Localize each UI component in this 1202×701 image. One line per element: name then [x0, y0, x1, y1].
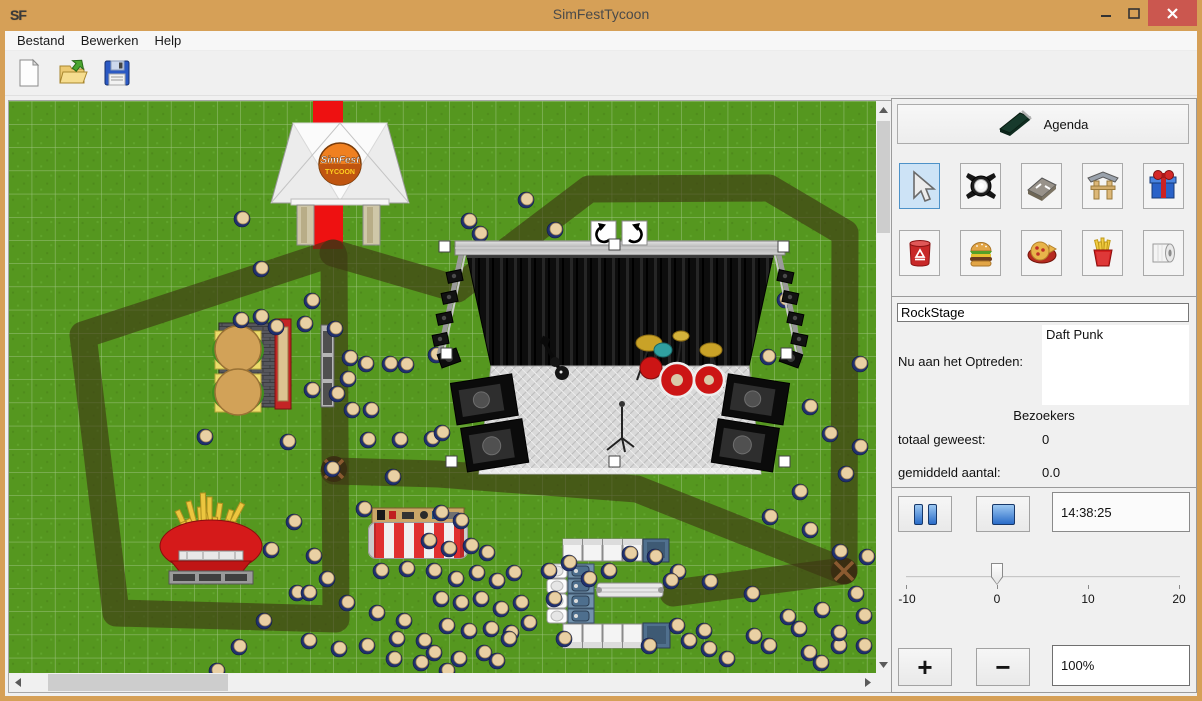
visitor[interactable] [301, 633, 317, 649]
visitor[interactable] [340, 371, 356, 387]
zoom-level-box[interactable]: 100% [1052, 645, 1190, 686]
visitor[interactable] [344, 402, 360, 418]
zoom-out-button[interactable]: − [976, 648, 1030, 686]
visitor[interactable] [856, 608, 872, 624]
visitor[interactable] [513, 595, 529, 611]
pause-icon [914, 504, 923, 525]
minimize-button[interactable] [1092, 0, 1120, 26]
menu-item-bewerken[interactable]: Bewerken [73, 31, 147, 50]
save-file-button[interactable] [99, 54, 135, 92]
visitor[interactable] [822, 426, 838, 442]
zoom-level-value: 100% [1061, 658, 1094, 673]
speed-slider-thumb[interactable] [991, 563, 1003, 585]
minimize-icon [1100, 7, 1112, 19]
visitor[interactable] [382, 356, 398, 372]
speed-slider-track[interactable] [906, 576, 1180, 578]
visitor[interactable] [331, 641, 347, 657]
visitor[interactable] [832, 544, 848, 560]
visitor[interactable] [473, 591, 489, 607]
visitor[interactable] [396, 613, 412, 629]
selection-handle[interactable] [609, 239, 620, 250]
agenda-label: Agenda [1044, 117, 1089, 132]
visitor[interactable] [744, 586, 760, 602]
road-tile-icon [1025, 169, 1059, 203]
maximize-button[interactable] [1120, 0, 1148, 26]
spotlight-icon [964, 169, 998, 203]
visitor[interactable] [701, 641, 717, 657]
tool-road-button[interactable] [1021, 163, 1062, 209]
visitor[interactable] [556, 631, 572, 647]
close-button[interactable] [1148, 0, 1197, 26]
visitor[interactable] [848, 586, 864, 602]
clock-display: 14:38:25 [1052, 492, 1190, 532]
scroll-up-arrow[interactable] [876, 101, 891, 118]
visitor[interactable] [385, 469, 401, 485]
vertical-scrollbar[interactable] [876, 101, 891, 673]
visitor[interactable] [286, 514, 302, 530]
visitor[interactable] [304, 382, 320, 398]
selection-handle[interactable] [439, 241, 450, 252]
visitor[interactable] [461, 623, 477, 639]
visitor[interactable] [506, 565, 522, 581]
selection-handle[interactable] [778, 241, 789, 252]
visitor[interactable] [301, 585, 317, 601]
visitor[interactable] [342, 350, 358, 366]
visitor[interactable] [760, 349, 776, 365]
tool-burger-stand-button[interactable] [960, 230, 1001, 276]
scroll-down-arrow[interactable] [876, 656, 891, 673]
cursor-icon [903, 169, 937, 203]
visitor[interactable] [461, 213, 477, 229]
visitor[interactable] [339, 595, 355, 611]
visitor[interactable] [791, 621, 807, 637]
visitor[interactable] [398, 357, 414, 373]
visitor[interactable] [622, 546, 638, 562]
visitor[interactable] [329, 386, 345, 402]
save-floppy-icon [101, 57, 133, 89]
visitor[interactable] [369, 605, 385, 621]
visitor[interactable] [233, 312, 249, 328]
visitor[interactable] [426, 563, 442, 579]
rock-stage[interactable] [432, 221, 808, 474]
visitor[interactable] [413, 655, 429, 671]
title-bar: SF SimFestTycoon [0, 0, 1202, 31]
visitor[interactable] [416, 633, 432, 649]
visitor[interactable] [363, 402, 379, 418]
visitor[interactable] [324, 461, 340, 477]
visitor[interactable] [399, 561, 415, 577]
visitor[interactable] [601, 563, 617, 579]
side-panel: Agenda Nu aan het Optreden: Daft Punk Be… [891, 98, 1197, 693]
total-visitors-value: 0 [1042, 432, 1049, 447]
visitor[interactable] [280, 434, 296, 450]
visitor[interactable] [479, 545, 495, 561]
visitor[interactable] [441, 541, 457, 557]
burger-icon [964, 236, 998, 270]
visitor[interactable] [641, 638, 657, 654]
visitor[interactable] [856, 638, 872, 654]
visitor[interactable] [663, 573, 679, 589]
visitor[interactable] [434, 425, 450, 441]
now-performing-value: Daft Punk [1046, 327, 1103, 342]
horizontal-scrollbar[interactable] [9, 673, 876, 692]
visitor[interactable] [489, 653, 505, 669]
visitor[interactable] [304, 293, 320, 309]
visitor[interactable] [483, 621, 499, 637]
close-icon [1166, 7, 1179, 20]
selection-handle[interactable] [781, 348, 792, 359]
visitor[interactable] [389, 631, 405, 647]
tool-entrance-gate-button[interactable] [1082, 163, 1123, 209]
visitor[interactable] [547, 222, 563, 238]
visitor[interactable] [386, 651, 402, 667]
visitor[interactable] [373, 563, 389, 579]
slider-label-zero: 0 [994, 592, 1001, 606]
svg-text:TYCOON: TYCOON [325, 169, 355, 176]
visitor[interactable] [814, 602, 830, 618]
map-canvas[interactable]: SimFestTYCOON [8, 100, 892, 693]
slider-label-min: -10 [898, 592, 915, 606]
stop-button[interactable] [976, 496, 1030, 532]
visitor[interactable] [647, 549, 663, 565]
new-file-button[interactable] [11, 54, 47, 92]
visitor[interactable] [453, 595, 469, 611]
scroll-left-arrow[interactable] [9, 673, 26, 692]
visitor[interactable] [360, 432, 376, 448]
now-performing-box: Daft Punk [1042, 325, 1189, 405]
visitor[interactable] [253, 309, 269, 325]
open-file-button[interactable] [55, 54, 91, 92]
slider-label-twenty: 20 [1172, 592, 1185, 606]
pizza-icon [1025, 236, 1059, 270]
visitor[interactable] [197, 429, 213, 445]
svg-text:SimFest: SimFest [321, 155, 361, 166]
menu-item-bestand[interactable]: Bestand [9, 31, 73, 50]
visitor[interactable] [831, 625, 847, 641]
total-visitors-label: totaal geweest: [898, 432, 985, 447]
fries-icon [1086, 236, 1120, 270]
visitor[interactable] [792, 484, 808, 500]
toilet-roll-icon [1147, 236, 1181, 270]
visitor[interactable] [433, 505, 449, 521]
visitor[interactable] [439, 618, 455, 634]
time-controls-group: 14:38:25 -10 0 10 20 + − [891, 487, 1197, 693]
visitor[interactable] [268, 319, 284, 335]
toolbar [5, 51, 1197, 96]
visitor[interactable] [469, 565, 485, 581]
plus-icon: + [917, 657, 932, 677]
visitor[interactable] [327, 321, 343, 337]
zoom-in-button[interactable]: + [898, 648, 952, 686]
clock-value: 14:38:25 [1061, 505, 1112, 520]
visitor[interactable] [802, 399, 818, 415]
visitor[interactable] [421, 533, 437, 549]
tool-select-button[interactable] [899, 163, 940, 209]
visitor[interactable] [541, 563, 557, 579]
visitor[interactable] [813, 655, 829, 671]
visitor[interactable] [761, 638, 777, 654]
visitor[interactable] [518, 192, 534, 208]
visitor[interactable] [433, 591, 449, 607]
visitors-header: Bezoekers [892, 408, 1196, 423]
visitor[interactable] [859, 549, 875, 565]
slider-label-ten: 10 [1081, 592, 1094, 606]
visitor[interactable] [746, 628, 762, 644]
new-document-icon [13, 57, 45, 89]
tool-grid [899, 163, 1184, 276]
gift-icon [1147, 169, 1181, 203]
stage-name-input[interactable] [897, 303, 1189, 322]
tools-group: Agenda [891, 98, 1197, 297]
visitor[interactable] [493, 601, 509, 617]
visitor[interactable] [702, 574, 718, 590]
visitor[interactable] [669, 618, 685, 634]
horizontal-scroll-thumb[interactable] [48, 674, 228, 691]
tool-fries-stand-button[interactable] [1082, 230, 1123, 276]
festival-map[interactable]: SimFestTYCOON [9, 101, 876, 673]
vertical-scroll-thumb[interactable] [877, 121, 890, 233]
visitor[interactable] [358, 356, 374, 372]
visitor[interactable] [852, 356, 868, 372]
agenda-book-icon [998, 107, 1032, 142]
minus-icon: − [995, 657, 1010, 677]
tool-gift-button[interactable] [1143, 163, 1184, 209]
visitor[interactable] [852, 439, 868, 455]
visitor[interactable] [489, 573, 505, 589]
visitor[interactable] [780, 609, 796, 625]
visitor[interactable] [501, 631, 517, 647]
selection-handle[interactable] [446, 456, 457, 467]
visitor[interactable] [306, 548, 322, 564]
selection-handle[interactable] [609, 456, 620, 467]
average-visitors-label: gemiddeld aantal: [898, 465, 1001, 480]
maximize-icon [1128, 7, 1140, 19]
pause-button[interactable] [898, 496, 952, 532]
visitor[interactable] [263, 542, 279, 558]
menu-bar: Bestand Bewerken Help [5, 31, 1197, 51]
visitor[interactable] [356, 501, 372, 517]
now-performing-label: Nu aan het Optreden: [898, 354, 1023, 369]
visitor[interactable] [472, 226, 488, 242]
selection-handle[interactable] [441, 348, 452, 359]
tool-stage-light-button[interactable] [960, 163, 1001, 209]
visitor[interactable] [451, 651, 467, 667]
agenda-button[interactable]: Agenda [897, 104, 1189, 144]
scroll-right-arrow[interactable] [859, 673, 876, 692]
visitor[interactable] [802, 522, 818, 538]
visitor[interactable] [546, 591, 562, 607]
rotate-cw-button[interactable] [622, 221, 647, 245]
trash-can-icon [903, 236, 937, 270]
visitor[interactable] [253, 261, 269, 277]
menu-item-help[interactable]: Help [147, 31, 190, 50]
average-visitors-value: 0.0 [1042, 465, 1060, 480]
stop-icon [992, 504, 1015, 525]
visitor[interactable] [681, 633, 697, 649]
visitor[interactable] [234, 211, 250, 227]
tool-toilet-button[interactable] [1143, 230, 1184, 276]
window-title: SimFestTycoon [0, 6, 1202, 22]
visitor[interactable] [256, 613, 272, 629]
visitor[interactable] [762, 509, 778, 525]
tool-trash-can-button[interactable] [899, 230, 940, 276]
selection-handle[interactable] [779, 456, 790, 467]
tool-pizza-stand-button[interactable] [1021, 230, 1062, 276]
visitor[interactable] [359, 638, 375, 654]
visitor[interactable] [453, 513, 469, 529]
open-folder-icon [57, 57, 89, 89]
path-junction-marker [831, 558, 857, 584]
visitor[interactable] [297, 316, 313, 332]
visitor[interactable] [838, 466, 854, 482]
visitor[interactable] [231, 639, 247, 655]
app-window: SF SimFestTycoon Bestand Bewerken Help [0, 0, 1202, 701]
scrollbar-corner [876, 673, 891, 692]
visitor[interactable] [521, 615, 537, 631]
visitor[interactable] [719, 651, 735, 667]
visitor[interactable] [463, 538, 479, 554]
visitor[interactable] [561, 555, 577, 571]
visitor[interactable] [581, 571, 597, 587]
visitor[interactable] [319, 571, 335, 587]
stage-info-group: Nu aan het Optreden: Daft Punk Bezoekers… [891, 296, 1197, 488]
visitor[interactable] [448, 571, 464, 587]
visitor[interactable] [392, 432, 408, 448]
visitor[interactable] [696, 623, 712, 639]
gate-icon [1086, 169, 1120, 203]
